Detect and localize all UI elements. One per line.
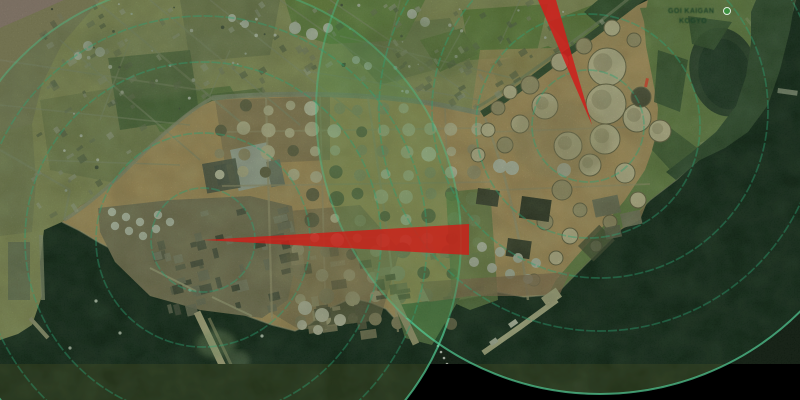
svg-text:KOGYO: KOGYO [679, 18, 707, 25]
svg-text:GOI KAIGAN: GOI KAIGAN [668, 8, 714, 15]
